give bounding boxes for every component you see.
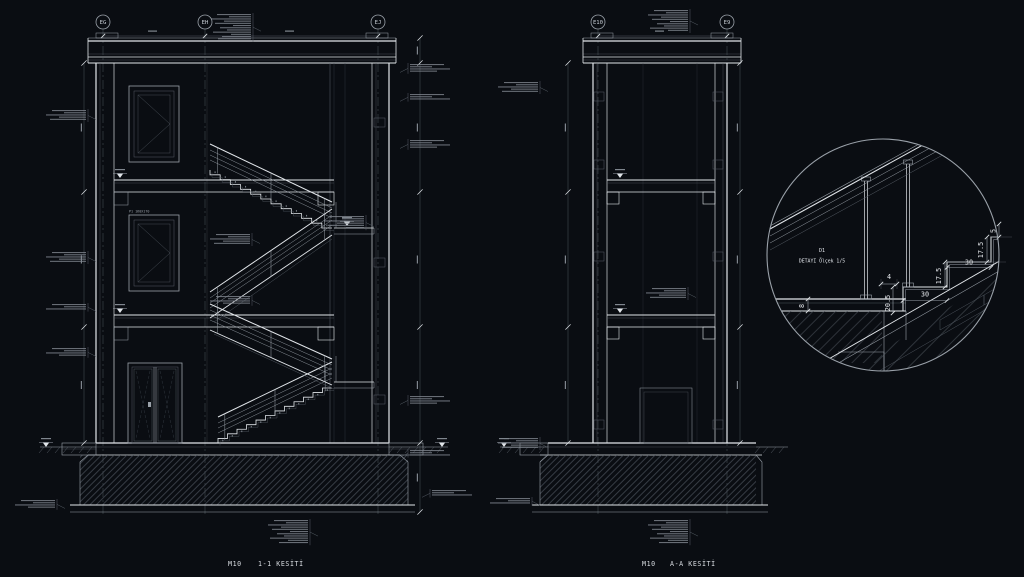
section-a-a-drawing (490, 9, 788, 545)
dim-slab-edge: 20.5 (884, 295, 892, 311)
caption-title-1-1: 1-1 KESİTİ (258, 559, 304, 568)
window-tag: P1 160X170 (129, 210, 149, 214)
cad-canvas: EG EH EJ E10 E9 M10 1-1 KESİTİ M10 A-A K… (0, 0, 1024, 577)
grid-label-e10: E10 (593, 20, 603, 26)
grid-label-eg: EG (100, 20, 107, 26)
drawing-captions: M10 1-1 KESİTİ M10 A-A KESİTİ (228, 559, 716, 568)
dim-top: 5 (990, 229, 998, 233)
cad-viewport: EG EH EJ E10 E9 M10 1-1 KESİTİ M10 A-A K… (0, 0, 1024, 577)
detail-title-line2: DETAYI Ölçek 1/5 (799, 258, 845, 265)
grid-label-ej: EJ (375, 20, 382, 26)
caption-title-a-a: A-A KESİTİ (670, 559, 716, 568)
dim-nosing: 4 (887, 273, 891, 281)
grid-bubbles: EG EH EJ E10 E9 (96, 15, 734, 29)
dim-slab-thickness: 8 (798, 304, 806, 308)
caption-code-1-1: M10 (228, 560, 242, 568)
grid-label-eh: EH (202, 20, 209, 26)
dim-riser-a: 17.5 (935, 268, 943, 284)
dim-tread-a: 30 (921, 291, 929, 299)
grid-label-e9: E9 (724, 20, 731, 26)
dim-riser-b: 17.5 (977, 242, 985, 258)
dim-tread-b: 30 (965, 259, 973, 267)
detail-title-line1: D1 (819, 248, 825, 254)
section-1-1-drawing (15, 13, 472, 545)
caption-code-a-a: M10 (642, 560, 656, 568)
